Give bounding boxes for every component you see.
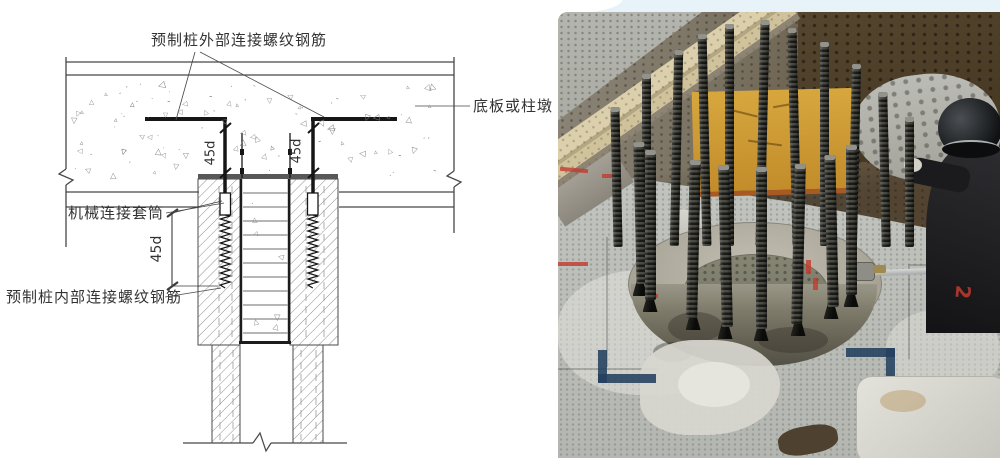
wrench-fitting <box>873 265 886 273</box>
label-external-rebar: 预制桩外部连接螺纹钢筋 <box>151 31 327 50</box>
pile-top-band <box>198 174 338 179</box>
rebar-rod <box>905 117 914 247</box>
core-dowel-bars <box>240 133 292 178</box>
rod-top-cap <box>645 150 656 155</box>
rod-top-cap <box>642 74 651 79</box>
rod-top-cap <box>824 155 835 160</box>
label-slab-or-pier: 底板或柱墩 <box>473 97 553 116</box>
rod-top-cap <box>795 164 806 169</box>
rod-top-cap <box>846 145 857 150</box>
rod-top-cap <box>718 165 729 170</box>
rod-top-cap <box>610 107 619 112</box>
external-rebar-hooks <box>145 119 397 207</box>
label-internal-rebar: 预制桩内部连接螺纹钢筋 <box>6 288 182 307</box>
cement-bag <box>856 376 1000 458</box>
rod-top-cap <box>690 160 701 165</box>
rod-top-cap <box>725 24 734 29</box>
blue-corner-mark-left <box>598 374 656 383</box>
helmet-brim <box>942 140 1000 158</box>
grout-spill-bright <box>678 362 750 407</box>
page: ◁▵◁··▽◁·‐◁◁·▵▵◁·◁△◁▽‐·▵·◁··▵▽▵◁▽▽·▵◁·▽▽·… <box>0 0 1000 458</box>
rod-top-cap <box>633 142 644 147</box>
dim-45d-hook-right: 45d <box>290 139 305 164</box>
rod-top-cap <box>788 28 797 33</box>
pile-connection-detail-drawing: ◁▵◁··▽◁·‐◁◁·▵▵◁·◁△◁▽‐·▵·◁··▵▽▵◁▽▽·▵◁·▽▽·… <box>0 0 556 458</box>
pile-walls <box>198 179 338 443</box>
core-infill <box>239 179 291 343</box>
rod-top-cap <box>852 64 861 69</box>
rod-top-cap <box>760 20 769 25</box>
rebar-rod <box>756 167 767 329</box>
red-layout-mark <box>558 262 588 266</box>
red-number-mark: 2 <box>950 284 975 300</box>
site-photo-pile-head: 2 <box>558 12 1000 458</box>
rod-top-cap <box>878 92 887 97</box>
rebar-rod <box>645 150 656 300</box>
rod-top-cap <box>905 117 914 122</box>
rod-top-cap <box>674 50 683 55</box>
rod-top-cap <box>698 34 707 39</box>
rebar-rod <box>846 145 857 295</box>
pavement-joint <box>908 264 910 359</box>
red-rim-mark <box>806 260 811 274</box>
pavement-joint <box>606 237 608 367</box>
dim-45d-hook-left: 45d <box>204 141 219 166</box>
dim-45d-splice: 45d <box>149 236 165 263</box>
drawing-linework <box>0 0 556 458</box>
red-rim-mark <box>813 278 818 290</box>
label-sleeve: 机械连接套筒 <box>68 204 164 223</box>
rod-top-cap <box>756 167 767 172</box>
rod-top-cap <box>820 42 829 47</box>
bag-stain <box>880 390 926 412</box>
